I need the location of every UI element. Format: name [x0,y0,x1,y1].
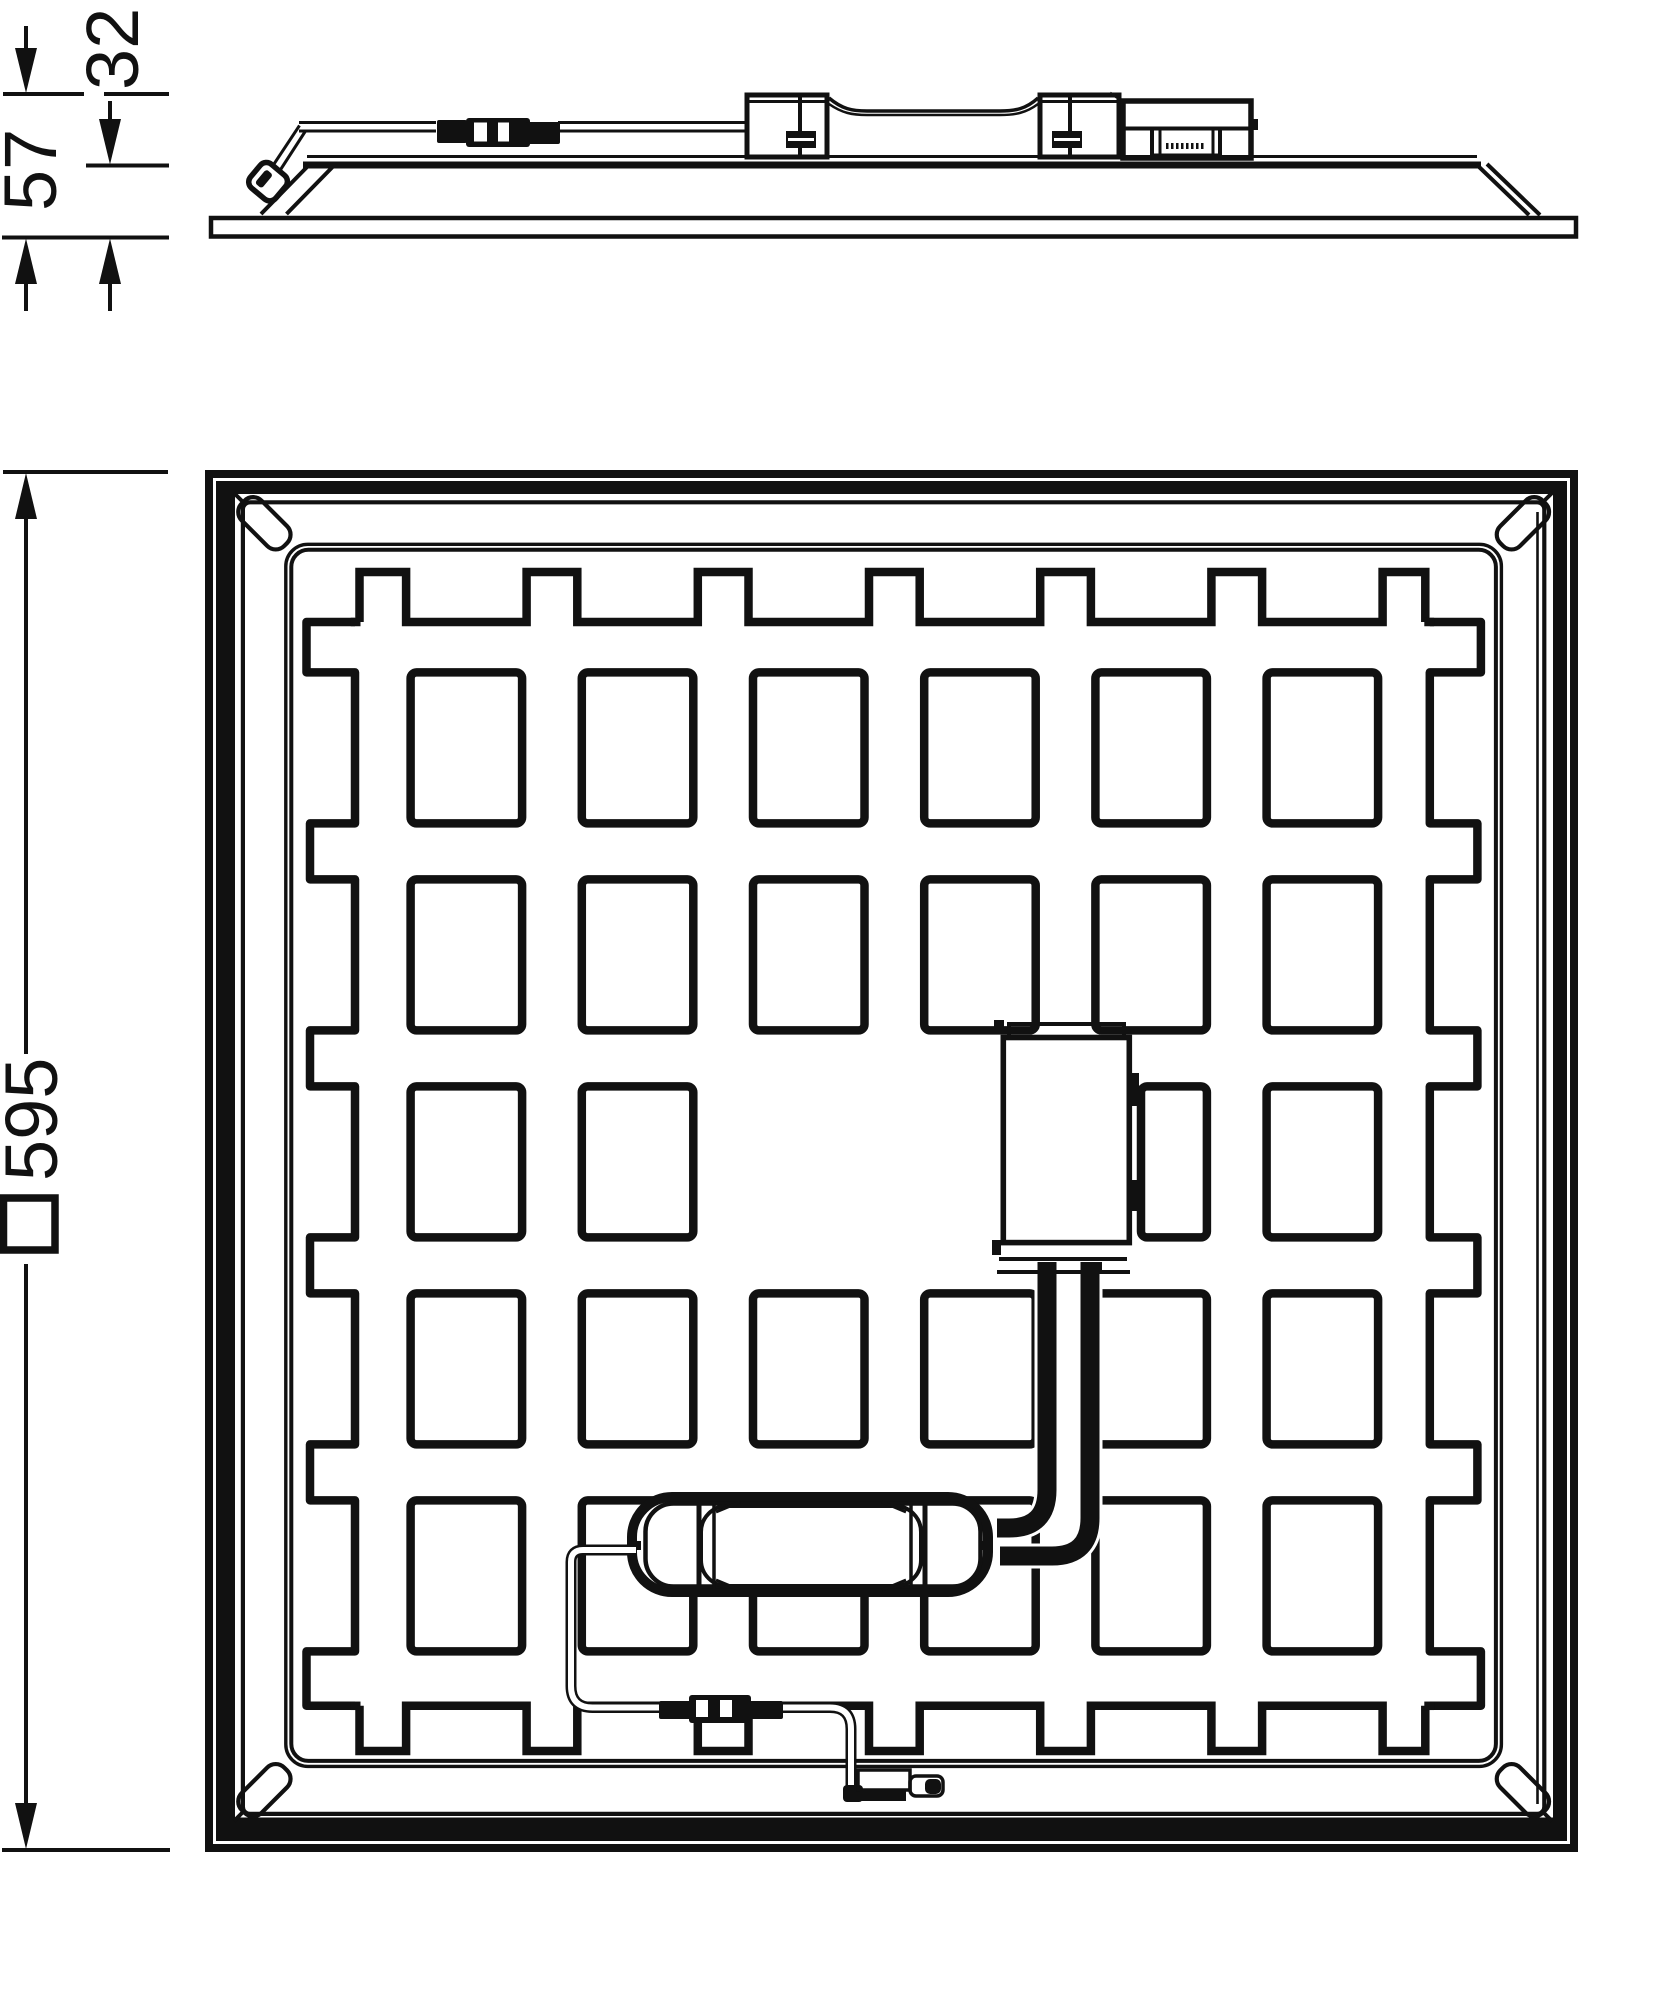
svg-text:595: 595 [0,1058,73,1181]
svg-text:57: 57 [0,129,72,211]
svg-text:32: 32 [71,8,154,90]
